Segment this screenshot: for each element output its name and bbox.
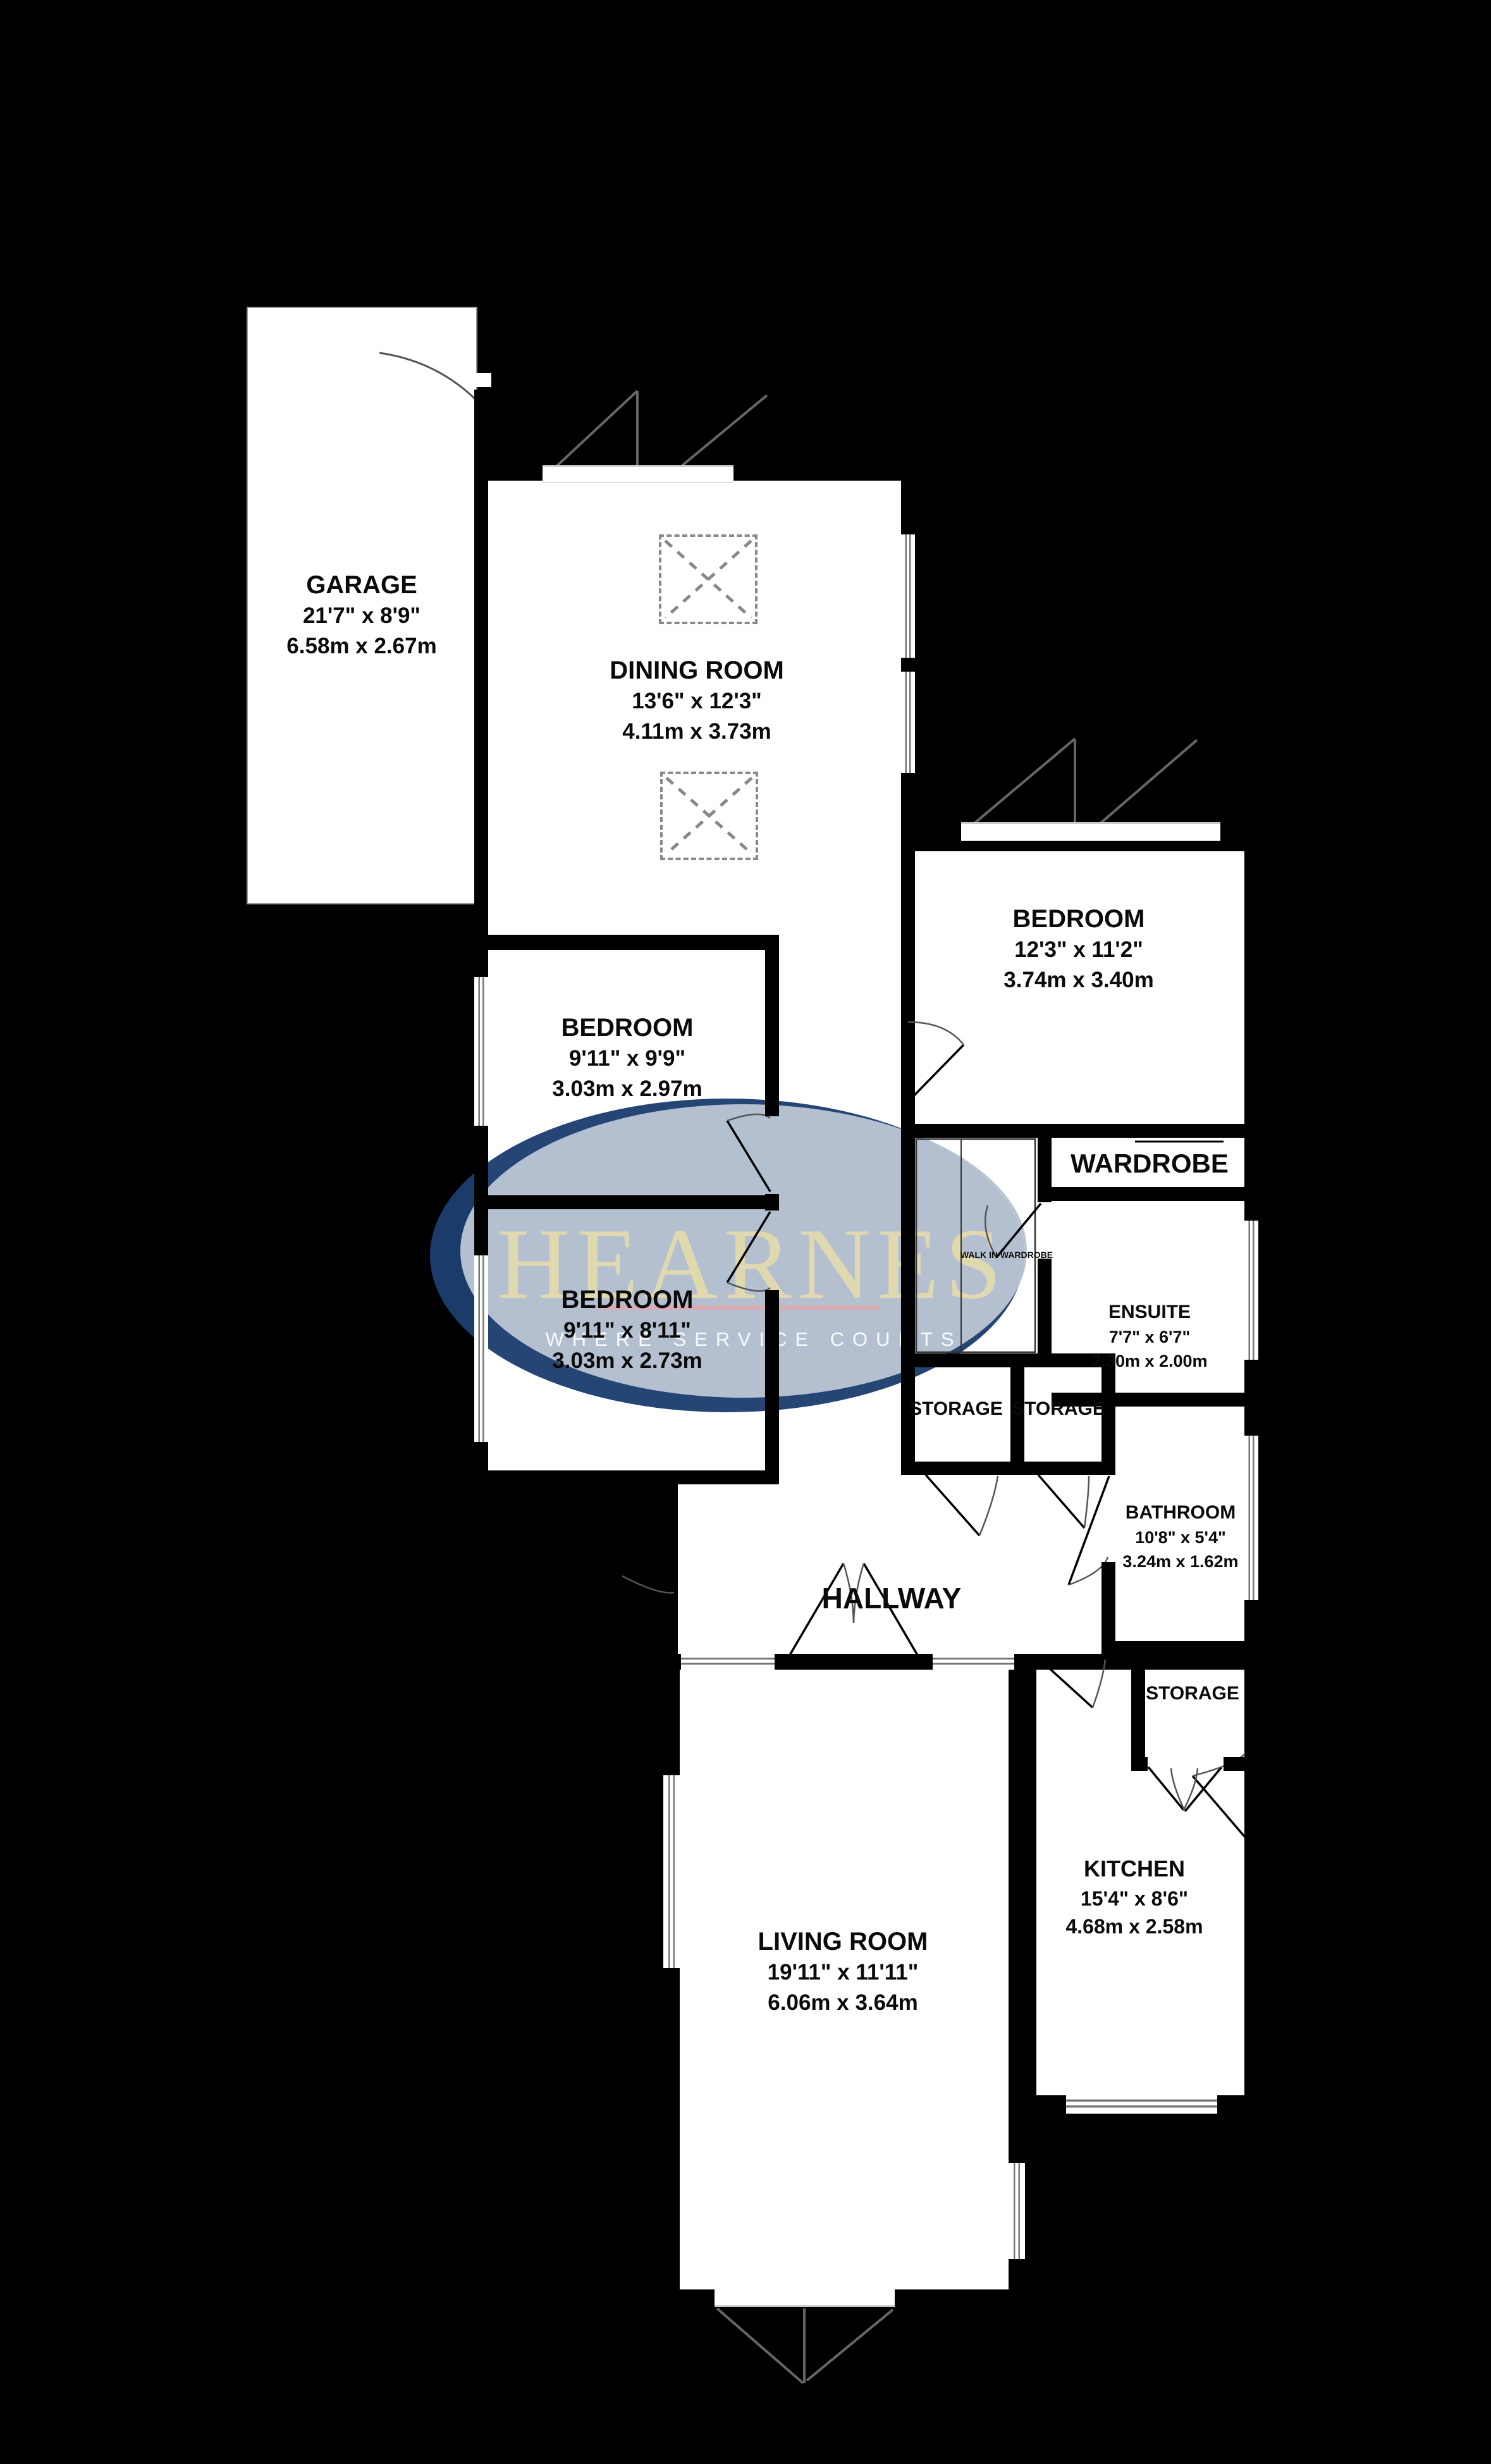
window <box>1244 1436 1258 1600</box>
wall-segment <box>664 2289 715 2305</box>
entrance-sidelight-left <box>681 1653 775 1670</box>
bedroom-patio-door-bar <box>961 822 1220 841</box>
room-label-bedroom-mid: BEDROOM 9'11" x 9'9" 3.03m x 2.97m <box>552 1012 702 1104</box>
wall-segment <box>1009 1670 1022 2163</box>
room-size-imperial: 19'11" x 11'11" <box>758 1957 928 1988</box>
wall-segment <box>474 1126 488 1255</box>
wall-segment <box>733 467 916 481</box>
living-garden-door-bar <box>715 2288 895 2307</box>
wall-segment <box>901 1462 923 1475</box>
wall-segment <box>664 1484 678 1512</box>
room-size-imperial: 13'6" x 12'3" <box>610 686 784 717</box>
wall-segment <box>474 950 488 977</box>
living-doors-open-symbol <box>717 2308 893 2383</box>
wall-segment <box>1224 1757 1244 1771</box>
window <box>1066 2093 1217 2114</box>
room-size-imperial: 9'11" x 9'9" <box>552 1044 702 1074</box>
window <box>1009 2163 1025 2259</box>
window <box>1244 1221 1258 1360</box>
wall-segment <box>1022 2095 1066 2112</box>
room-size-imperial: 21'7" x 8'9" <box>286 601 436 631</box>
room-label-living-room: LIVING ROOM 19'11" x 11'11" 6.06m x 3.64… <box>758 1926 928 2018</box>
garage-threshold <box>476 373 491 387</box>
window <box>474 977 488 1126</box>
wall-segment <box>901 1353 1115 1367</box>
wall-segment <box>901 467 915 534</box>
wall-segment <box>915 1124 1038 1138</box>
window <box>474 1255 488 1442</box>
label-storage-1: STORAGE <box>909 1398 1003 1420</box>
window <box>663 1775 680 1968</box>
room-label-dining-room: DINING ROOM 13'6" x 12'3" 4.11m x 3.73m <box>610 655 784 747</box>
wall-segment <box>1009 2259 1022 2305</box>
room-size-metric: 3.03m x 2.97m <box>552 1074 702 1104</box>
floor-plan: HEARNES WHERE SERVICE COUNTS <box>0 0 1491 2464</box>
room-size-imperial: 10'8" x 5'4" <box>1122 1525 1238 1549</box>
wall-segment <box>1000 1462 1024 1475</box>
room-label-bedroom-bottom: BEDROOM 9'11" x 8'11" 3.03m x 2.73m <box>552 1284 702 1376</box>
room-name: ENSUITE <box>1091 1300 1207 1325</box>
room-name: KITCHEN <box>1065 1853 1203 1885</box>
room-label-kitchen: KITCHEN 15'4" x 8'6" 4.68m x 2.58m <box>1065 1853 1203 1940</box>
wall-segment <box>901 773 915 1019</box>
room-label-bedroom-right: BEDROOM 12'3" x 11'2" 3.74m x 3.40m <box>1003 903 1153 995</box>
wall-segment <box>895 2289 1022 2305</box>
wall-segment <box>1244 837 1258 1221</box>
room-name: BATHROOM <box>1122 1500 1238 1525</box>
room-size-metric: 4.68m x 2.58m <box>1065 1913 1203 1940</box>
wall-segment <box>1101 1641 1258 1655</box>
wall-segment <box>1024 1462 1037 1475</box>
wall-segment <box>1131 1757 1148 1771</box>
room-name: BEDROOM <box>552 1284 702 1315</box>
wall-segment <box>1244 1600 1258 1752</box>
label-storage-2: STORAGE <box>1012 1398 1105 1420</box>
room-size-metric: 6.58m x 2.67m <box>286 631 436 662</box>
wall-segment <box>1131 1670 1145 1771</box>
wall-segment <box>1014 1654 1022 1670</box>
wall-segment <box>474 1195 779 1209</box>
wall-segment <box>664 1654 681 1670</box>
wall-segment <box>1038 1259 1052 1367</box>
window <box>901 534 915 658</box>
wall-segment <box>915 837 961 851</box>
wall-segment <box>1217 2095 1258 2112</box>
wall-segment <box>901 658 915 672</box>
bedroom-doors-open-symbol <box>964 739 1197 834</box>
wall-segment <box>474 935 779 950</box>
window <box>901 672 915 773</box>
walk-in-wardrobe-outline <box>916 1139 1035 1352</box>
room-size-metric: 3.03m x 2.73m <box>552 1346 702 1376</box>
room-name: BEDROOM <box>552 1012 702 1044</box>
wall-segment <box>1022 1655 1036 2112</box>
room-size-imperial: 7'7" x 6'7" <box>1091 1325 1207 1349</box>
wardrobe-rails <box>1086 1132 1224 1142</box>
room-size-imperial: 9'11" x 8'11" <box>552 1315 702 1346</box>
wall-segment <box>1244 1837 1258 2112</box>
wall-segment <box>1038 1187 1244 1201</box>
label-storage-3: STORAGE <box>1146 1682 1239 1705</box>
room-size-metric: 4.11m x 3.73m <box>610 717 784 747</box>
room-size-metric: 2.30m x 2.00m <box>1091 1349 1207 1373</box>
room-name: BEDROOM <box>1003 903 1153 935</box>
wall-segment <box>1107 1655 1258 1670</box>
room-name: GARAGE <box>286 569 436 601</box>
wall-segment <box>1244 1360 1258 1436</box>
porch-door-arc <box>379 353 486 410</box>
wall-segment <box>664 1968 680 2305</box>
room-label-ensuite: ENSUITE 7'7" x 6'7" 2.30m x 2.00m <box>1091 1300 1207 1373</box>
label-walk-in-wardrobe: WALK IN WARDROBE <box>960 1250 1053 1260</box>
room-size-imperial: 12'3" x 11'2" <box>1003 935 1153 965</box>
room-size-metric: 3.74m x 3.40m <box>1003 965 1153 995</box>
wall-segment <box>664 1670 680 1775</box>
room-label-bathroom: BATHROOM 10'8" x 5'4" 3.24m x 1.62m <box>1122 1500 1238 1574</box>
room-name: DINING ROOM <box>610 655 784 686</box>
wall-segment <box>474 1470 779 1484</box>
wall-segment <box>765 935 779 1116</box>
room-name: LIVING ROOM <box>758 1926 928 1957</box>
label-hallway: HALLWAY <box>822 1581 962 1615</box>
room-size-metric: 6.06m x 3.64m <box>758 1988 928 2018</box>
entrance-sidelight-right <box>933 1653 1014 1670</box>
dining-patio-door-bar <box>543 465 733 483</box>
room-label-garage: GARAGE 21'7" x 8'9" 6.58m x 2.67m <box>286 569 436 662</box>
wall-segment <box>765 1194 779 1210</box>
label-wardrobe: WARDROBE <box>1071 1149 1229 1179</box>
wall-segment <box>1220 1124 1244 1138</box>
wall-segment <box>664 1594 678 1654</box>
room-size-imperial: 15'4" x 8'6" <box>1065 1885 1203 1913</box>
room-size-metric: 3.24m x 1.62m <box>1122 1549 1238 1574</box>
wall-segment <box>765 1290 779 1484</box>
wall-segment <box>474 467 544 481</box>
wall-segment <box>901 1103 915 1367</box>
